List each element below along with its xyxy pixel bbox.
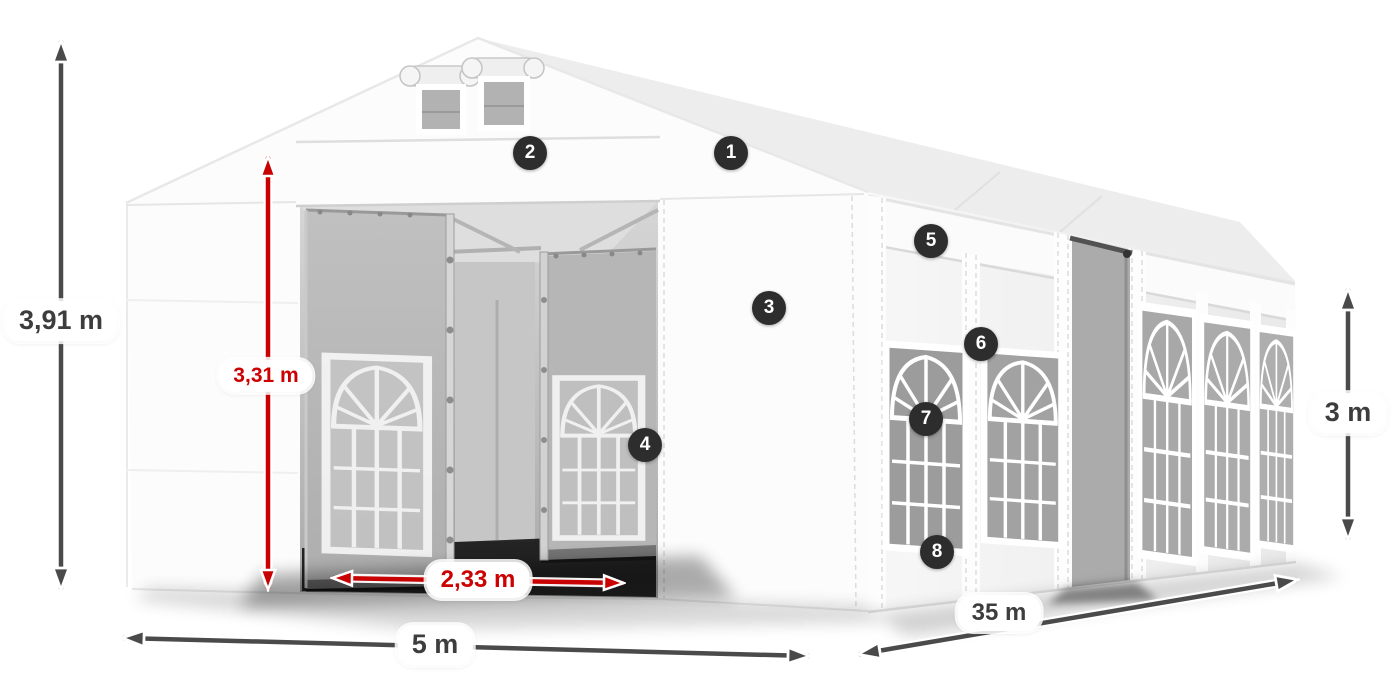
dim-value-length: 35 m — [972, 599, 1027, 626]
dim-label-entrance-height: 3,31 m — [219, 360, 312, 392]
side-doorway — [1070, 238, 1132, 588]
callout-badge-2: 2 — [513, 136, 547, 170]
entrance-left-flap — [306, 209, 447, 592]
tent-body — [126, 38, 1296, 613]
callout-badge-8: 8 — [920, 535, 954, 569]
dim-label-width: 5 m — [398, 625, 473, 665]
callout-badge-1: 1 — [714, 136, 748, 170]
callout-badge-3: 3 — [752, 291, 786, 325]
dim-label-entrance-width: 2,33 m — [427, 562, 530, 598]
side-window-2 — [984, 350, 1062, 545]
callout-badge-5: 5 — [914, 224, 948, 258]
dim-label-side-height: 3 m — [1311, 393, 1386, 433]
side-window-4 — [1202, 318, 1252, 557]
entrance-right-flap — [541, 249, 656, 563]
tent-illustration — [0, 0, 1400, 700]
dim-value-entrance-height: 3,31 m — [233, 364, 298, 387]
dim-value-entrance-width: 2,33 m — [441, 566, 516, 593]
side-window-5 — [1258, 328, 1295, 549]
side-window-1 — [886, 344, 966, 553]
dim-value-side-height: 3 m — [1325, 397, 1372, 427]
dim-label-total-height: 3,91 m — [5, 301, 117, 341]
tent-dimension-diagram: 3,91 m 3,31 m 2,33 m 5 m 35 m 3 m 1 2 3 … — [0, 0, 1400, 700]
side-window-3 — [1140, 306, 1194, 562]
dim-label-length: 35 m — [958, 595, 1041, 631]
callout-badge-7: 7 — [909, 402, 943, 436]
dim-value-width: 5 m — [412, 629, 459, 659]
dim-value-total-height: 3,91 m — [19, 305, 103, 335]
entrance-opening — [296, 201, 660, 598]
callout-badge-6: 6 — [964, 327, 998, 361]
callout-badge-4: 4 — [628, 428, 662, 462]
